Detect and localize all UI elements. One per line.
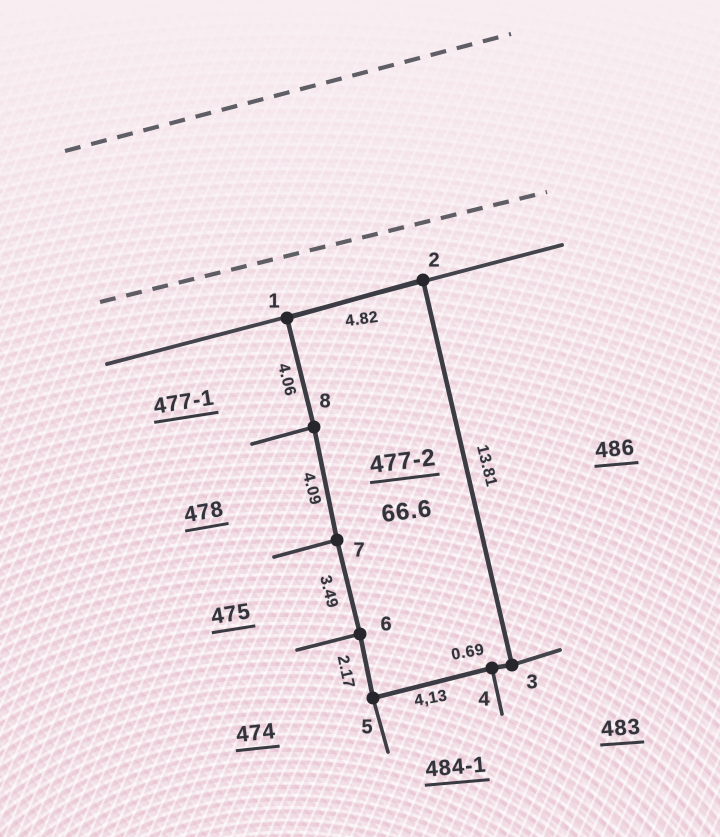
vertex-label-3: 3 (526, 672, 537, 695)
boundary-spur-at-7 (274, 540, 337, 557)
parcel-edge-5-6 (360, 634, 373, 698)
vertex-label-4: 4 (478, 689, 489, 712)
dashed-road-line-upper (65, 34, 511, 151)
dashed-road-line-lower (100, 192, 547, 302)
vertex-label-8: 8 (319, 391, 330, 414)
parcel-label-484-1: 484-1 (422, 751, 489, 783)
cadastral-sketch-page: { "document": { "kind_label": "cadastral… (0, 0, 720, 837)
vertex-label-1: 1 (268, 291, 279, 314)
boundary-spur-at-6 (297, 634, 360, 650)
survey-point-7 (331, 534, 344, 547)
survey-point-3 (506, 659, 519, 672)
parcel-label-483: 483 (598, 714, 643, 743)
vertex-label-2: 2 (428, 250, 439, 273)
survey-point-5 (367, 692, 380, 705)
road-edge-from-3 (512, 650, 560, 665)
parcel-label-474: 474 (233, 718, 279, 748)
survey-point-4 (486, 662, 499, 675)
survey-point-1 (281, 312, 294, 325)
parcel-label-484-1-text: 484-1 (422, 751, 490, 787)
parcel-label-486-text: 486 (592, 434, 638, 468)
parcel-label-486: 486 (592, 434, 638, 464)
boundary-spur-below-5 (373, 698, 388, 752)
boundary-spur-at-8 (252, 427, 314, 444)
boundary-spur-below-4 (492, 668, 502, 714)
survey-point-8 (308, 421, 321, 434)
vertex-label-5: 5 (361, 717, 372, 740)
parcel-label-474-text: 474 (233, 718, 280, 752)
vertex-label-6: 6 (380, 614, 391, 637)
survey-point-6 (354, 628, 367, 641)
parcel-label-483-text: 483 (598, 714, 644, 747)
diagram-lines (0, 0, 720, 837)
survey-point-2 (417, 274, 430, 287)
vertex-label-7: 7 (353, 540, 364, 563)
parcel-label-475: 475 (207, 598, 254, 631)
